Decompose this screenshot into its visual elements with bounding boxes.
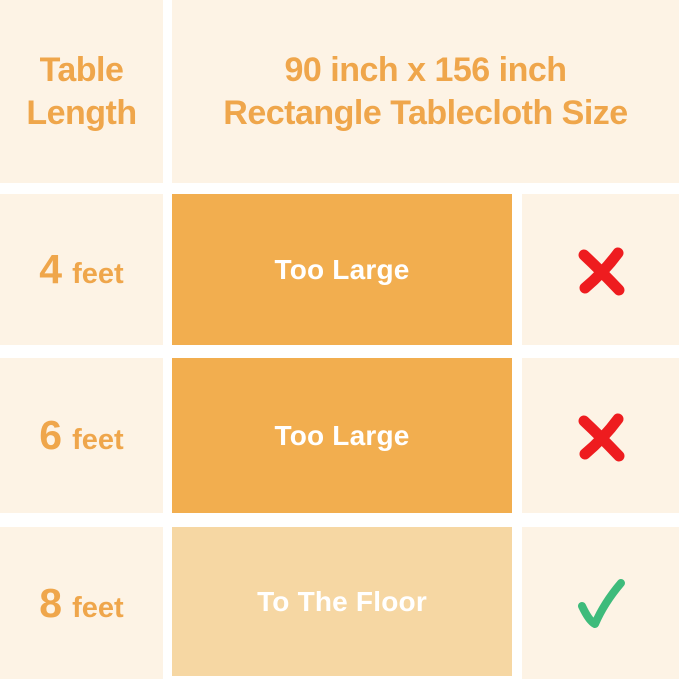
table-length-cell-row2: 6 feet [0, 358, 163, 513]
length-unit: feet [72, 592, 124, 625]
cross-icon [574, 408, 628, 464]
length-number: 4 [39, 246, 62, 293]
size-title-line1: 90 inch x 156 inch [284, 49, 566, 92]
fit-label: To The Floor [257, 586, 427, 618]
fit-result-cell-row3: To The Floor [172, 527, 512, 676]
table-length-cell-row1: 4 feet [0, 194, 163, 345]
table-length-value: 8 feet [39, 580, 123, 627]
verdict-cell-row1 [522, 194, 679, 345]
header-cell-size-title: 90 inch x 156 inch Rectangle Tablecloth … [172, 0, 679, 183]
table-length-cell-row3: 8 feet [0, 527, 163, 679]
verdict-cell-row2 [522, 358, 679, 513]
length-number: 6 [39, 412, 62, 459]
fit-label: Too Large [274, 254, 409, 286]
tablecloth-size-chart: Table Length 90 inch x 156 inch Rectangl… [0, 0, 679, 679]
fit-label: Too Large [274, 420, 409, 452]
length-unit: feet [72, 258, 124, 291]
fit-result-cell-row2: Too Large [172, 358, 512, 513]
cross-icon [574, 242, 628, 298]
verdict-cell-row3 [522, 527, 679, 679]
size-title-line2: Rectangle Tablecloth Size [223, 92, 627, 135]
header-cell-table-length: Table Length [0, 0, 163, 183]
length-number: 8 [39, 580, 62, 627]
fit-result-cell-row1: Too Large [172, 194, 512, 345]
check-icon [576, 577, 626, 629]
table-length-value: 6 feet [39, 412, 123, 459]
header-table-length-line1: Table [40, 49, 124, 92]
table-length-value: 4 feet [39, 246, 123, 293]
length-unit: feet [72, 424, 124, 457]
header-table-length-line2: Length [26, 92, 136, 135]
